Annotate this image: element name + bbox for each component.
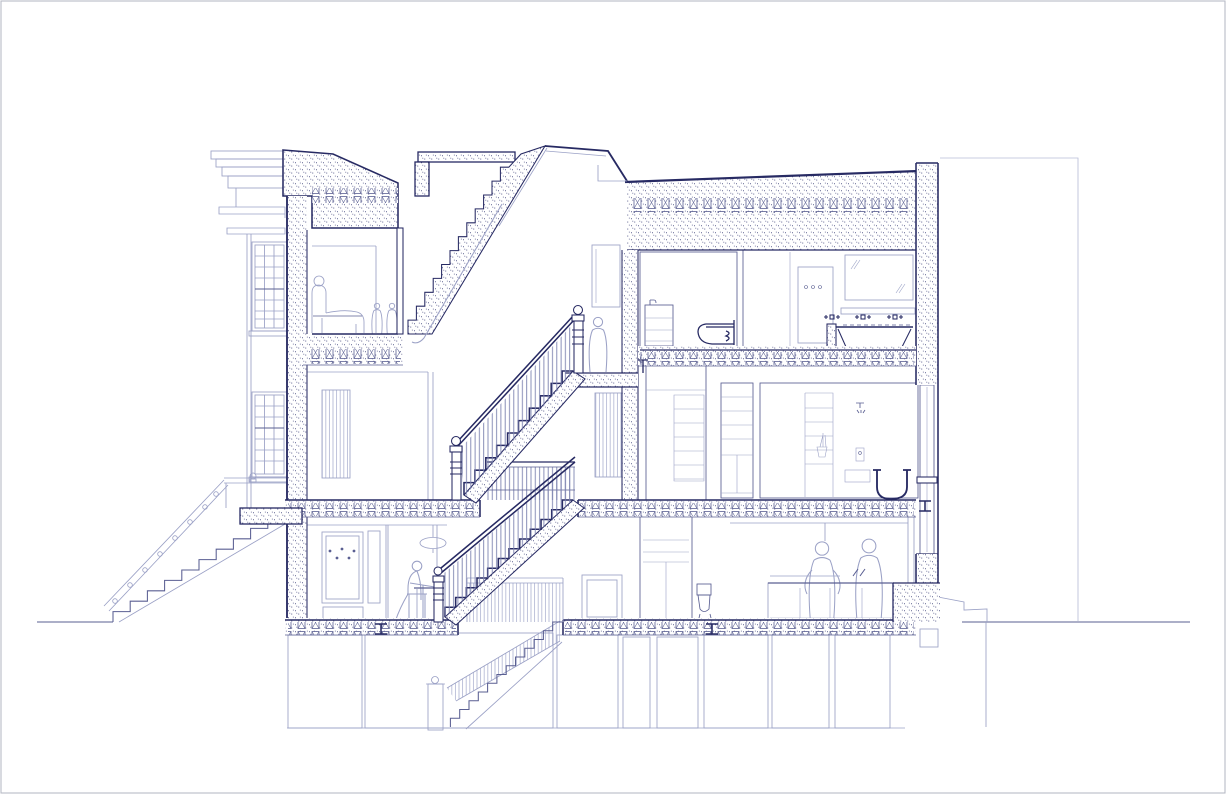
garden-rear-step [893,583,940,622]
freestanding-bathtub [873,470,911,499]
coat-hook-panel [322,531,380,620]
faucet-icon [853,569,865,576]
small-bathroom [640,252,737,350]
roof-ridge [545,146,627,181]
top-floor-bathrooms [640,250,918,353]
cellar-piers [288,633,890,728]
faucet-trio [824,315,903,319]
top-floor-band-front [303,228,403,365]
rear-sash-window [916,385,938,554]
vanity-ledge [841,308,915,314]
garden-level [307,513,914,622]
vase-with-stems [817,433,827,457]
stoop [104,473,302,622]
top-floor-band-rear [638,346,916,366]
neighbor-outline [940,158,1078,621]
stair-landing [589,245,620,372]
top-front-room [312,246,397,335]
wardrobe [640,513,692,621]
stoop-railing [104,473,302,611]
footing-block [920,629,938,647]
garden-toilet [697,584,712,622]
basement-newel [426,677,445,731]
shower-head-icon [856,403,865,413]
rear-roof-band [598,165,918,250]
bedroom-bathroom [760,383,918,499]
front-facade [211,151,289,508]
front-facade-window-upper [249,242,289,336]
parlor-band-front [285,500,480,517]
newel-garden [433,567,444,622]
garden-band-front [285,618,458,635]
front-facade-window-lower [249,392,289,482]
building-section-svg [0,0,1226,794]
parlor-band-rear [578,500,916,517]
basement-stair [426,621,562,730]
section-drawing-canvas [0,0,1226,794]
top-floor-partition [397,228,403,334]
newel-parlor [450,437,462,501]
chaise-with-figure [312,276,364,333]
kitchen-island [768,583,894,622]
rear-glazed-door [908,517,914,583]
garden-cabinet [582,575,622,622]
wall-hung-toilet [698,320,734,345]
landing-figure [589,317,607,372]
newel-top [572,306,584,374]
hall-radiator-panel [595,393,622,477]
stoop-landing-slab [240,508,302,524]
garden-steps-profile [938,597,987,622]
garden-band-rear [563,618,916,635]
bench [845,470,870,482]
mirror-cabinet [845,255,913,300]
front-wall-cut [287,196,307,620]
closet-shelving [646,363,753,501]
pendant-lamp [420,525,446,553]
kitchen [730,517,914,622]
kitchen-figures [805,539,882,621]
radiator-panel [322,390,350,478]
washstand-cabinet [645,300,673,346]
main-bathroom [743,250,918,353]
stoop-steps [113,508,302,622]
